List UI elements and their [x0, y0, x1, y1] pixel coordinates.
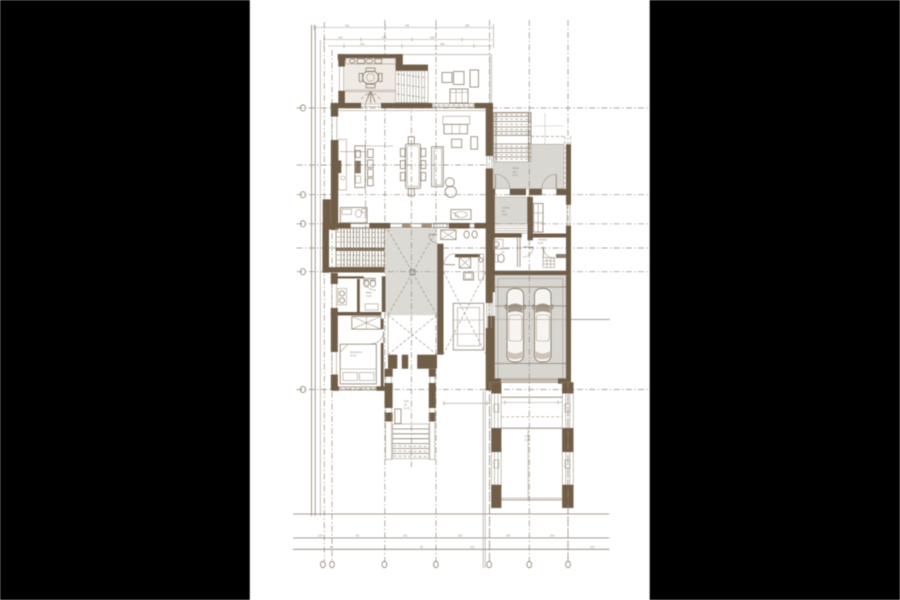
- svg-text:315: 315: [382, 36, 387, 40]
- svg-text:240: 240: [506, 534, 511, 538]
- svg-text:255: 255: [465, 24, 470, 28]
- svg-text:232: 232: [360, 42, 365, 46]
- svg-text:Cuarto: Cuarto: [502, 247, 510, 251]
- svg-text:1.90: 1.90: [525, 434, 531, 438]
- svg-text:16.32: 16.32: [350, 354, 357, 358]
- svg-text:312: 312: [403, 534, 408, 538]
- svg-text:Dormitorio: Dormitorio: [350, 350, 363, 354]
- svg-text:Bode: Bode: [513, 166, 520, 170]
- svg-text:Baño: Baño: [366, 291, 373, 295]
- svg-text:320: 320: [458, 534, 463, 538]
- svg-text:446: 446: [405, 24, 410, 28]
- svg-text:300: 300: [430, 36, 435, 40]
- svg-text:5.16: 5.16: [502, 213, 508, 217]
- svg-text:102: 102: [470, 545, 475, 549]
- svg-text:320: 320: [345, 24, 350, 28]
- svg-text:Vestidor: Vestidor: [538, 238, 548, 242]
- svg-text:6.05: 6.05: [538, 241, 544, 245]
- svg-text:214: 214: [550, 534, 555, 538]
- svg-text:Hall: Hall: [404, 399, 409, 403]
- svg-text:8.02: 8.02: [513, 173, 519, 177]
- svg-text:120: 120: [590, 545, 595, 549]
- svg-text:268: 268: [440, 42, 445, 46]
- svg-text:11.01: 11.01: [404, 406, 411, 410]
- svg-text:3.05: 3.05: [525, 438, 531, 442]
- svg-text:146: 146: [338, 36, 343, 40]
- svg-text:Cuarto: Cuarto: [502, 206, 510, 210]
- svg-text:125: 125: [318, 534, 323, 538]
- svg-text:4.18: 4.18: [366, 294, 372, 298]
